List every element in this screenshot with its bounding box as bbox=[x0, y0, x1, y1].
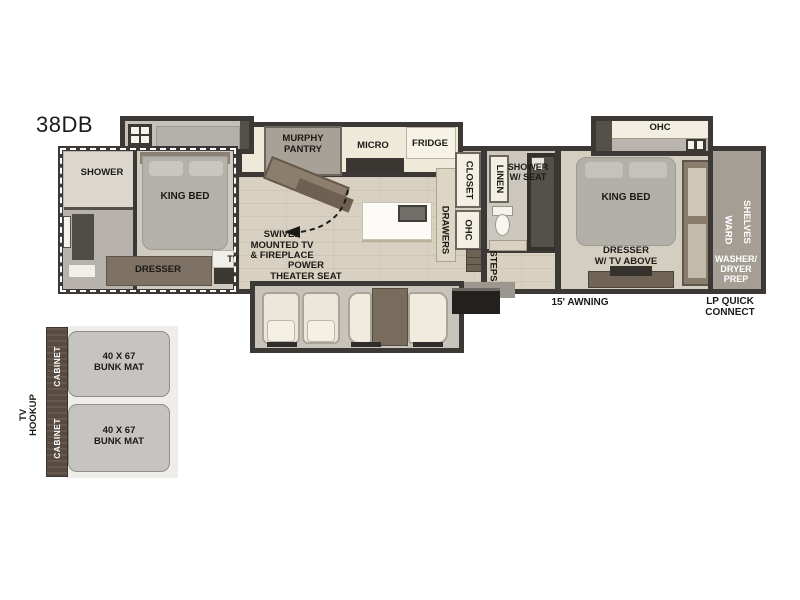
kitchen-sink bbox=[398, 205, 427, 222]
rear-king-bed-label: KING BED bbox=[584, 192, 668, 203]
model-title: 38DB bbox=[36, 112, 93, 138]
rear-ohc-label: OHC bbox=[612, 123, 708, 134]
entry-door bbox=[452, 288, 500, 314]
wardrobe-shelf-top bbox=[688, 168, 706, 216]
dinette-bench-right bbox=[408, 292, 448, 344]
toilet-bowl bbox=[495, 214, 510, 236]
lp-quick-connect-label: LP QUICK CONNECT bbox=[692, 296, 768, 318]
shelves-label: SHELVES bbox=[736, 182, 756, 262]
micro-label: MICRO bbox=[342, 141, 404, 152]
awning-label: 15' AWNING bbox=[538, 297, 622, 308]
rear-bed-pillow-right bbox=[629, 162, 667, 178]
slide-window-2 bbox=[351, 342, 381, 347]
steps-label: STEPS bbox=[485, 246, 501, 286]
slide-window-3 bbox=[413, 342, 443, 347]
rear-bed-pillow-left bbox=[585, 162, 623, 178]
cabinet-top-label: CABINET bbox=[46, 334, 68, 398]
front-suite-dashed-outline bbox=[60, 148, 236, 292]
floorplan-page: { "colors": { "wall": "#3b3835", "wood_f… bbox=[0, 0, 800, 600]
front-slide-window bbox=[128, 124, 152, 146]
ohc-mid-label: OHC bbox=[455, 209, 481, 251]
bunk-mat-top-label: 40 X 67 BUNK MAT bbox=[78, 352, 160, 373]
front-slide-cabinet bbox=[240, 121, 249, 149]
ward-label: WARD bbox=[718, 198, 738, 262]
rear-dresser-label: DRESSER W/ TV ABOVE bbox=[578, 246, 674, 267]
wardrobe-shelf-bottom bbox=[688, 224, 706, 278]
cabinet-bottom-label: CABINET bbox=[46, 406, 68, 470]
closet-label: CLOSET bbox=[455, 154, 481, 206]
theater-seat-left bbox=[262, 292, 300, 344]
dinette-bench-left bbox=[348, 292, 372, 344]
swivel-tv-label: SWIVEL MOUNTED TV & FIREPLACE bbox=[234, 230, 330, 262]
power-theater-seat-label: POWER THEATER SEAT bbox=[254, 261, 358, 282]
rear-slide-window bbox=[686, 139, 706, 151]
living-slideout bbox=[250, 281, 464, 353]
tv-hookup-label: TV HOOKUP bbox=[12, 382, 46, 448]
range-cooktop bbox=[346, 158, 404, 172]
rear-tv bbox=[610, 266, 652, 276]
murphy-pantry-label: MURPHY PANTRY bbox=[266, 134, 340, 155]
washer-dryer-prep-label: WASHER/ DRYER PREP bbox=[708, 254, 764, 284]
fridge-label: FRIDGE bbox=[402, 139, 458, 150]
drawers-label: DRAWERS bbox=[434, 194, 454, 266]
dinette-table bbox=[372, 288, 408, 346]
shower-w-seat-label: SHOWER W/ SEAT bbox=[498, 162, 558, 182]
slide-window-1 bbox=[267, 342, 297, 347]
rear-slide-cabinet bbox=[596, 121, 612, 151]
bunk-mat-bottom-label: 40 X 67 BUNK MAT bbox=[78, 426, 160, 447]
theater-seat-right bbox=[302, 292, 340, 344]
